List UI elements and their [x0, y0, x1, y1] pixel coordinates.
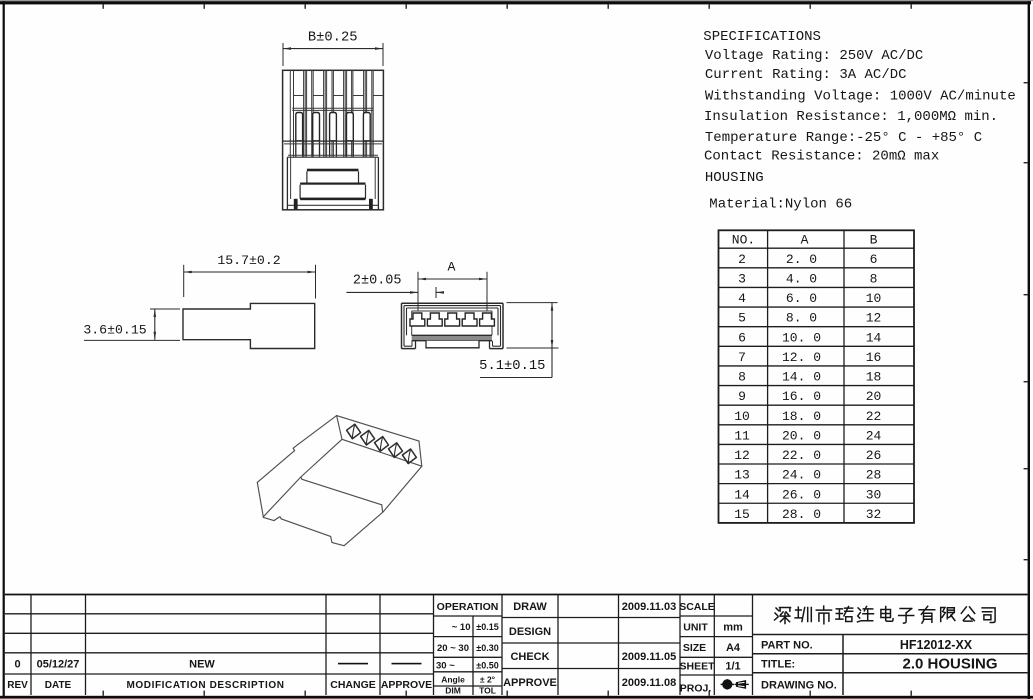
svg-text:3.6±0.15: 3.6±0.15	[83, 323, 146, 338]
svg-text:2. 0: 2. 0	[786, 252, 817, 267]
svg-text:18: 18	[866, 370, 882, 385]
svg-text:28. 0: 28. 0	[782, 507, 821, 522]
svg-text:Contact Resistance: 20mΩ max: Contact Resistance: 20mΩ max	[704, 148, 939, 164]
svg-text:30: 30	[866, 487, 882, 502]
svg-text:TOL: TOL	[479, 686, 496, 696]
svg-text:Temperature Range:-25° C - +85: Temperature Range:-25° C - +85° C	[705, 130, 982, 146]
svg-text:2.0 HOUSING: 2.0 HOUSING	[902, 655, 997, 672]
svg-text:10: 10	[734, 409, 750, 424]
svg-text:APPROVE: APPROVE	[381, 679, 432, 691]
svg-text:SHEET: SHEET	[679, 661, 715, 673]
svg-text:28: 28	[866, 468, 882, 483]
svg-text:20. 0: 20. 0	[782, 428, 821, 443]
svg-text:A: A	[801, 233, 809, 248]
svg-text:APPROVE: APPROVE	[503, 677, 557, 689]
svg-text:PROJ.: PROJ.	[680, 682, 712, 694]
svg-text:DRAWING NO.: DRAWING NO.	[761, 679, 837, 691]
svg-text:13: 13	[734, 468, 750, 483]
svg-text:UNIT: UNIT	[683, 621, 708, 633]
svg-text:±0.50: ±0.50	[476, 660, 498, 670]
svg-text:22: 22	[866, 409, 882, 424]
svg-text:14: 14	[734, 487, 750, 502]
svg-text:2009.11.08: 2009.11.08	[622, 677, 676, 689]
svg-text:1/1: 1/1	[725, 661, 740, 673]
svg-text:32: 32	[866, 507, 882, 522]
svg-text:20: 20	[866, 389, 882, 404]
svg-text:2009.11.05: 2009.11.05	[622, 651, 676, 663]
svg-text:MODIFICATION DESCRIPTION: MODIFICATION DESCRIPTION	[126, 680, 284, 691]
svg-text:±0.30: ±0.30	[476, 643, 498, 653]
svg-text:4. 0: 4. 0	[786, 271, 817, 286]
svg-text:CHECK: CHECK	[510, 651, 549, 663]
svg-text:DIM: DIM	[445, 686, 461, 696]
svg-text:6: 6	[738, 330, 746, 345]
svg-text:± 2°: ± 2°	[480, 674, 496, 684]
svg-text:3: 3	[738, 271, 746, 286]
svg-text:15: 15	[734, 507, 750, 522]
svg-text:±0.15: ±0.15	[476, 622, 498, 632]
svg-text:DRAW: DRAW	[513, 601, 547, 613]
svg-text:Material:Nylon 66: Material:Nylon 66	[709, 197, 852, 213]
svg-text:Current Rating: 3A AC/DC: Current Rating: 3A AC/DC	[705, 67, 907, 83]
svg-text:24: 24	[866, 428, 882, 443]
svg-text:4: 4	[738, 291, 746, 306]
svg-text:B±0.25: B±0.25	[308, 30, 358, 45]
svg-text:12: 12	[734, 448, 750, 463]
svg-text:SCALE: SCALE	[679, 601, 715, 613]
svg-text:05/12/27: 05/12/27	[37, 659, 80, 671]
svg-text:14: 14	[866, 330, 882, 345]
svg-text:CHANGE: CHANGE	[330, 679, 376, 691]
svg-text:2: 2	[738, 252, 746, 267]
svg-text:6. 0: 6. 0	[786, 291, 817, 306]
svg-text:8. 0: 8. 0	[786, 311, 817, 326]
svg-text:mm: mm	[723, 621, 743, 633]
svg-text:12. 0: 12. 0	[782, 350, 821, 365]
svg-text:15.7±0.2: 15.7±0.2	[217, 253, 280, 268]
svg-text:2009.11.03: 2009.11.03	[622, 601, 676, 613]
svg-text:A4: A4	[726, 642, 741, 654]
svg-text:NEW: NEW	[189, 659, 215, 671]
svg-text:8: 8	[738, 370, 746, 385]
svg-text:11: 11	[734, 428, 750, 443]
svg-text:~ 10: ~ 10	[452, 622, 471, 633]
svg-text:20 ~ 30: 20 ~ 30	[437, 643, 469, 654]
svg-text:22. 0: 22. 0	[782, 448, 821, 463]
svg-text:DATE: DATE	[45, 680, 72, 691]
svg-text:10: 10	[866, 291, 882, 306]
svg-text:9: 9	[738, 389, 746, 404]
svg-text:16. 0: 16. 0	[782, 389, 821, 404]
svg-text:5: 5	[738, 311, 746, 326]
svg-text:OPERATION: OPERATION	[437, 601, 499, 613]
svg-text:HF12012-XX: HF12012-XX	[900, 638, 973, 652]
svg-text:8: 8	[870, 271, 878, 286]
svg-text:26. 0: 26. 0	[782, 487, 821, 502]
svg-text:REV: REV	[7, 680, 28, 691]
svg-text:24. 0: 24. 0	[782, 468, 821, 483]
svg-text:10. 0: 10. 0	[782, 330, 821, 345]
svg-text:TITLE:: TITLE:	[761, 659, 795, 671]
svg-text:26: 26	[866, 448, 882, 463]
svg-text:HOUSING: HOUSING	[705, 170, 764, 186]
svg-text:SPECIFICATIONS: SPECIFICATIONS	[703, 29, 821, 45]
svg-text:SIZE: SIZE	[683, 642, 706, 654]
svg-text:A: A	[448, 259, 456, 274]
svg-text:Insulation Resistance: 1,000MΩ: Insulation Resistance: 1,000MΩ min.	[704, 109, 998, 125]
svg-text:16: 16	[866, 350, 882, 365]
svg-text:12: 12	[866, 311, 882, 326]
svg-text:NO.: NO.	[732, 233, 755, 248]
svg-text:2±0.05: 2±0.05	[353, 274, 402, 289]
svg-text:5.1±0.15: 5.1±0.15	[479, 359, 545, 374]
svg-text:Angle: Angle	[441, 674, 465, 684]
svg-text:14. 0: 14. 0	[782, 370, 821, 385]
svg-text:DESIGN: DESIGN	[509, 626, 551, 638]
svg-text:B: B	[870, 233, 878, 248]
svg-text:18. 0: 18. 0	[782, 409, 821, 424]
svg-text:30 ~: 30 ~	[436, 660, 455, 671]
svg-text:Withstanding Voltage: 1000V AC: Withstanding Voltage: 1000V AC/minute	[705, 89, 1016, 105]
svg-text:Voltage Rating: 250V AC/DC: Voltage Rating: 250V AC/DC	[705, 48, 923, 64]
svg-text:0: 0	[14, 659, 20, 671]
svg-text:6: 6	[870, 252, 878, 267]
svg-text:7: 7	[738, 350, 746, 365]
svg-text:PART NO.: PART NO.	[761, 640, 813, 652]
